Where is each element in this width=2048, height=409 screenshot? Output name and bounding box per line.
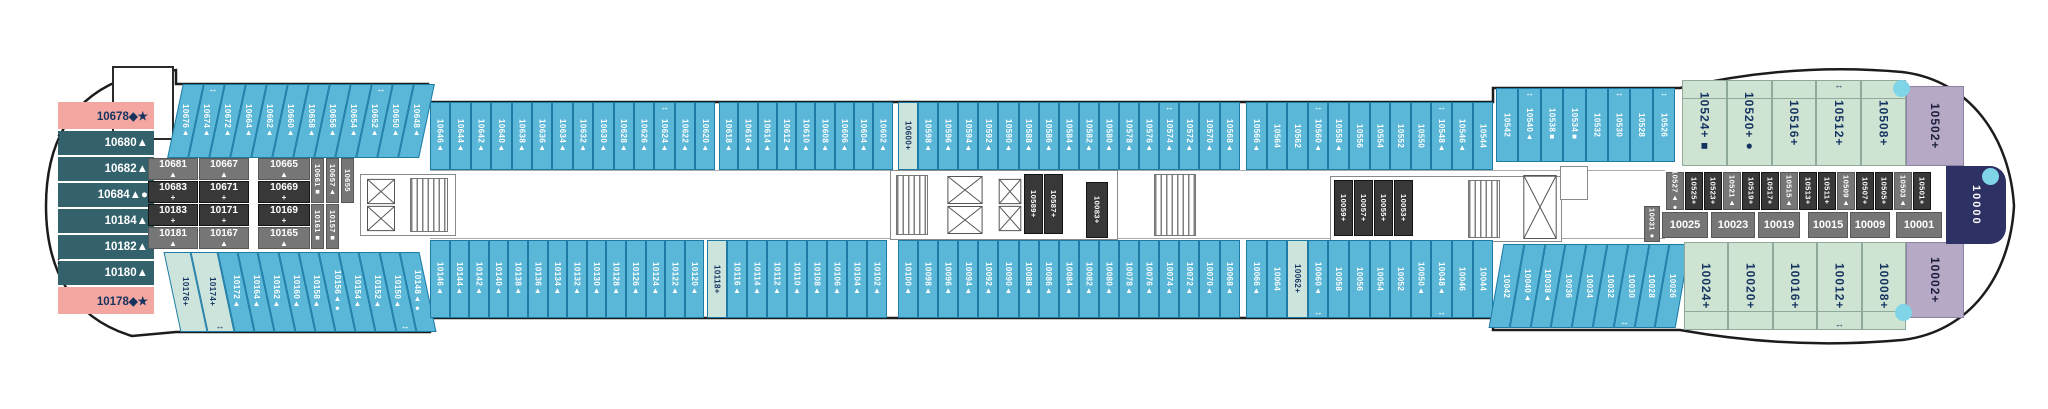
cabin-number: 10676▲ [181, 104, 190, 138]
cabin-10517[interactable]: 10517+ [1761, 172, 1779, 210]
cabin-number: 10046 [1458, 267, 1467, 291]
cabin-10636[interactable]: 10636▲ [532, 102, 552, 170]
cabin-10678[interactable]: 10678◆★ [58, 102, 154, 129]
cabin-10509[interactable]: 10509▲ [1837, 172, 1855, 210]
cabin-number: 10661■ [313, 164, 322, 196]
cabin-10642[interactable]: 10642▲ [471, 102, 491, 170]
cabin-row-segment: 10024+10020+10016+10012+↔10008+ [1684, 242, 1906, 330]
cabin-10526[interactable]: 10526↔ [1653, 88, 1675, 162]
cabin-10512[interactable]: 10512+↔ [1816, 80, 1861, 166]
cabin-number: 10124▲ [651, 262, 660, 296]
cabin-number: 10572▲ [1185, 119, 1194, 153]
cabin-10066[interactable]: 10066▲ [1246, 240, 1267, 318]
cabin-10070[interactable]: 10070▲ [1199, 240, 1219, 318]
cabin-10060[interactable]: 10060▲↔ [1308, 240, 1329, 318]
cabin-10146[interactable]: 10146▲ [430, 240, 450, 318]
cabin-number: 10530 [1615, 113, 1624, 137]
cabin-10068[interactable]: 10068▲ [1220, 240, 1240, 318]
cabin-10507[interactable]: 10507+ [1856, 172, 1874, 210]
cabin-10023[interactable]: 10023 [1711, 212, 1755, 238]
cabin-10031[interactable]: 10031● [1644, 206, 1660, 242]
cabin-number: 10520+● [1742, 92, 1756, 153]
cabin-10503[interactable]: 10503▲ [1894, 172, 1912, 210]
cabin-number: 10525+ [1690, 177, 1699, 205]
cabin-10527[interactable]: 10527▲● [1666, 172, 1684, 210]
cabin-10019[interactable]: 10019 [1758, 212, 1800, 238]
cabin-10086[interactable]: 10086▲ [1039, 240, 1059, 318]
cabin-10130[interactable]: 10130▲ [587, 240, 607, 318]
cabin-number: 10501+ [1918, 177, 1927, 205]
connecting-rooms-icon: ↔ [1309, 308, 1328, 317]
cabin-10568[interactable]: 10568▲ [1220, 102, 1240, 170]
cabin-number: 10167 [210, 229, 238, 239]
cabin-number: 10162▲ [272, 275, 281, 309]
cabin-10044[interactable]: 10044 [1473, 240, 1494, 318]
cabin-10516[interactable]: 10516+ [1772, 80, 1817, 166]
cabin-number: 10136▲ [533, 262, 542, 296]
cabin-number: 10161■ [313, 210, 322, 242]
stairs-icon [896, 175, 928, 235]
suite-divider [1683, 98, 1726, 99]
cabin-symbol: ▲ [220, 239, 228, 248]
cabin-number: 10556 [1355, 124, 1364, 148]
cabin-10012[interactable]: 10012+↔ [1817, 242, 1861, 330]
connecting-rooms-icon: ↔ [1519, 89, 1539, 98]
cabin-number: 10080▲ [1104, 262, 1113, 296]
cabin-10665[interactable]: 10665▲ [258, 158, 310, 180]
cabin-number: 10108▲ [813, 262, 822, 296]
cabin-10523[interactable]: 10523+ [1704, 172, 1722, 210]
cabin-10090[interactable]: 10090▲ [998, 240, 1018, 318]
cabin-number: 10550 [1417, 124, 1426, 148]
cabin-10182[interactable]: 10182▲ [58, 235, 154, 259]
cabin-10661[interactable]: 10661■ [311, 158, 324, 203]
cabin-10062[interactable]: 10062+ [1287, 240, 1308, 318]
cabin-number: 10154▲ [353, 275, 362, 309]
cabin-10076[interactable]: 10076▲ [1139, 240, 1159, 318]
cabin-row-segment: 10172▲10164▲10162▲10160▲10158▲10156▲●101… [217, 252, 436, 332]
cabin-number: 10674▲ [202, 104, 211, 138]
cabin-10667[interactable]: 10667▲ [199, 158, 249, 180]
cabin-number: 10126▲ [631, 262, 640, 296]
cabin-number: 10165 [270, 229, 298, 239]
cabin-10669[interactable]: 10669+ [258, 181, 310, 203]
cabin-10587[interactable]: 10587+ [1044, 174, 1063, 234]
cabin-10001[interactable]: 10001 [1896, 212, 1942, 238]
cabin-10165[interactable]: 10165▲ [258, 227, 310, 249]
cabin-number: 10656▲ [328, 104, 337, 138]
cabin-number: 10516+ [1787, 100, 1801, 146]
cabin-number: 10102▲ [873, 262, 882, 296]
cabin-number: 10024+ [1699, 263, 1713, 309]
cabin-10157[interactable]: 10157■ [326, 204, 339, 249]
cabin-10572[interactable]: 10572▲ [1179, 102, 1199, 170]
cabin-number: 10576▲ [1145, 119, 1154, 153]
cabin-10525[interactable]: 10525+ [1685, 172, 1703, 210]
cabin-10513[interactable]: 10513+ [1799, 172, 1817, 210]
cabin-10118[interactable]: 10118+ [707, 240, 727, 318]
cabin-number: 10132▲ [572, 262, 581, 296]
cabin-10671[interactable]: 10671+ [199, 181, 249, 203]
cabin-10558[interactable]: 10558▲ [1328, 102, 1349, 170]
cabin-10532[interactable]: 10532 [1586, 88, 1608, 162]
cabin-row-segment: 10600+10598▲10596▲10594▲10592▲10590▲1058… [898, 102, 1240, 170]
cabin-10544[interactable]: 10544 [1473, 102, 1494, 170]
cabin-number: 10587+ [1049, 190, 1058, 218]
cabin-number: 10116▲ [733, 262, 742, 295]
cabin-number: 10158▲ [312, 275, 321, 309]
cabin-number: 10628▲ [619, 119, 628, 153]
cabin-10646[interactable]: 10646▲ [430, 102, 450, 170]
cabin-number: 10090▲ [1004, 262, 1013, 296]
cabin-number: 10070▲ [1205, 262, 1214, 296]
cabin-number: 10016+ [1788, 263, 1802, 309]
cabin-10612[interactable]: 10612▲ [777, 102, 796, 170]
cabin-10634[interactable]: 10634▲ [552, 102, 572, 170]
cabin-number: 10578▲ [1125, 119, 1134, 153]
cabin-10580[interactable]: 10580▲ [1099, 102, 1119, 170]
cabin-10582[interactable]: 10582▲ [1079, 102, 1099, 170]
cabin-10048[interactable]: 10048▲↔ [1431, 240, 1452, 318]
cabin-number: 10120▲ [690, 262, 699, 296]
cabin-10600[interactable]: 10600+ [898, 102, 918, 170]
cabin-number: 10584▲ [1064, 119, 1073, 153]
cabin-10588[interactable]: 10588▲ [1019, 102, 1039, 170]
cabin-number: 10515▲ [1785, 175, 1794, 207]
cabin-10590[interactable]: 10590▲ [998, 102, 1018, 170]
cabin-10053[interactable]: 10053+ [1394, 180, 1413, 236]
cabin-10640[interactable]: 10640▲ [491, 102, 511, 170]
cabin-10589[interactable]: 10589+ [1024, 174, 1043, 234]
cabin-number: 10104▲ [853, 262, 862, 296]
cabin-number: 10000 [1970, 185, 1982, 226]
cabin-10684[interactable]: 10684▲● [58, 183, 154, 207]
cabin-10046[interactable]: 10046 [1452, 240, 1473, 318]
cabin-10110[interactable]: 10110▲ [787, 240, 807, 318]
cabin-10628[interactable]: 10628▲ [614, 102, 634, 170]
cabin-10102[interactable]: 10102▲ [867, 240, 887, 318]
cabin-10064[interactable]: 10064 [1267, 240, 1288, 318]
cabin-number: 10110▲ [793, 262, 802, 295]
cabin-number: 10622▲ [680, 119, 689, 153]
connecting-rooms-icon: ↔ [203, 85, 224, 94]
cabin-10083[interactable]: 10083+ [1086, 182, 1108, 238]
cabin-number: 10134▲ [553, 262, 562, 296]
cabin-number: 10118+ [713, 265, 722, 294]
cabin-10144[interactable]: 10144▲ [450, 240, 470, 318]
cabin-10556[interactable]: 10556 [1349, 102, 1370, 170]
cabin-number: 10570▲ [1205, 119, 1214, 153]
cabin-number: 10072▲ [1185, 262, 1194, 296]
cabin-number: 10600+ [904, 121, 913, 150]
cabin-number: 10064 [1272, 267, 1281, 291]
cabin-number: 10596▲ [944, 119, 953, 153]
cabin-10136[interactable]: 10136▲ [528, 240, 548, 318]
cabin-number: 10088▲ [1024, 262, 1033, 296]
cabin-10681[interactable]: 10681▲ [148, 158, 198, 180]
cabin-10126[interactable]: 10126▲ [626, 240, 646, 318]
cabin-number: 10527▲● [1671, 170, 1680, 212]
cabin-10098[interactable]: 10098▲ [918, 240, 938, 318]
cabin-number: 10169 [270, 206, 298, 216]
cabin-number: 10512+ [1832, 100, 1846, 146]
stairs-icon [1468, 180, 1500, 238]
cabin-10592[interactable]: 10592▲ [978, 102, 998, 170]
cabin-10515[interactable]: 10515▲ [1780, 172, 1798, 210]
cabin-10134[interactable]: 10134▲ [548, 240, 568, 318]
cabin-10084[interactable]: 10084▲ [1059, 240, 1079, 318]
cabin-10562[interactable]: 10562 [1287, 102, 1308, 170]
cabin-10644[interactable]: 10644▲ [450, 102, 470, 170]
cabin-number: 10616▲ [743, 119, 752, 153]
cabin-number: 10582▲ [1084, 119, 1093, 153]
cabin-10638[interactable]: 10638▲ [512, 102, 532, 170]
cabin-10072[interactable]: 10072▲ [1179, 240, 1199, 318]
cabin-10161[interactable]: 10161■ [311, 204, 324, 249]
cabin-10054[interactable]: 10054 [1370, 240, 1391, 318]
cabin-10114[interactable]: 10114▲ [747, 240, 767, 318]
cabin-10602[interactable]: 10602▲ [873, 102, 892, 170]
cabin-10108[interactable]: 10108▲ [807, 240, 827, 318]
cabin-10122[interactable]: 10122▲ [665, 240, 685, 318]
cabin-10184[interactable]: 10184▲ [58, 209, 154, 233]
cabin-10570[interactable]: 10570▲ [1199, 102, 1219, 170]
cabin-number: 10511+ [1823, 177, 1832, 204]
cabin-symbol: + [222, 193, 227, 202]
cabin-10616[interactable]: 10616▲ [738, 102, 757, 170]
cabin-10138[interactable]: 10138▲ [508, 240, 528, 318]
cabin-10566[interactable]: 10566▲ [1246, 102, 1267, 170]
cabin-10655[interactable]: 10655 [341, 158, 354, 203]
cabin-10682[interactable]: 10682▲ [58, 157, 154, 181]
cabin-10171[interactable]: 10171+ [199, 204, 249, 226]
cabin-10088[interactable]: 10088▲ [1019, 240, 1039, 318]
cabin-10140[interactable]: 10140▲ [489, 240, 509, 318]
cabin-10528[interactable]: 10528 [1630, 88, 1652, 162]
cabin-10080[interactable]: 10080▲ [1099, 240, 1119, 318]
feature-dot [1895, 304, 1912, 321]
cabin-number: 10660▲ [286, 104, 295, 138]
cabin-number: 10624▲ [660, 119, 669, 153]
cabin-10100[interactable]: 10100▲ [898, 240, 918, 318]
cabin-10181[interactable]: 10181▲ [148, 227, 198, 249]
cabin-number: 10036 [1564, 274, 1573, 298]
cabin-number: 10505+ [1880, 177, 1889, 205]
cabin-10620[interactable]: 10620▲ [695, 102, 715, 170]
cabin-row-segment: 10524+■10520+●10516+10512+↔10508+ [1682, 80, 1906, 166]
suite-divider [1818, 311, 1860, 312]
connecting-rooms-icon: ↔ [655, 103, 673, 112]
cabin-number: 10098▲ [924, 262, 933, 296]
cabin-10020[interactable]: 10020+ [1728, 242, 1772, 330]
cabin-10608[interactable]: 10608▲ [815, 102, 834, 170]
connecting-rooms-icon: ↔ [1309, 103, 1328, 112]
cabin-number: 10059+ [1339, 194, 1348, 222]
cabin-10055[interactable]: 10055+ [1374, 180, 1393, 236]
cabin-number: 10074▲ [1165, 262, 1174, 296]
cabin-number: 10044 [1478, 267, 1487, 291]
cabin-10538[interactable]: 10538■ [1541, 88, 1563, 162]
cabin-number: 10672▲ [223, 104, 232, 138]
feature-dot [1982, 168, 1999, 185]
cabin-10680[interactable]: 10680▲ [58, 131, 154, 155]
cabin-10632[interactable]: 10632▲ [573, 102, 593, 170]
cabin-symbol: + [171, 216, 176, 225]
cabin-number: 10638▲ [517, 119, 526, 153]
cabin-number: 10654▲ [349, 104, 358, 138]
cabin-10112[interactable]: 10112▲ [767, 240, 787, 318]
cabin-10502[interactable]: 10502+ [1906, 86, 1964, 166]
cabin-10124[interactable]: 10124▲ [646, 240, 666, 318]
cabin-10057[interactable]: 10057+ [1354, 180, 1373, 236]
cabin-number: 10122▲ [670, 262, 679, 296]
cabin-10024[interactable]: 10024+ [1684, 242, 1728, 330]
cabin-number: 10632▲ [578, 119, 587, 153]
cabin-10594[interactable]: 10594▲ [958, 102, 978, 170]
cabin-10540[interactable]: 10540▲↔ [1518, 88, 1540, 162]
cabin-number: 10114▲ [753, 262, 762, 295]
cabin-10104[interactable]: 10104▲ [847, 240, 867, 318]
cabin-10618[interactable]: 10618▲ [719, 102, 738, 170]
cabin-number: 10507+ [1861, 177, 1870, 205]
cabin-10564[interactable]: 10564 [1267, 102, 1288, 170]
cabin-10142[interactable]: 10142▲ [469, 240, 489, 318]
cabin-10604[interactable]: 10604▲ [854, 102, 873, 170]
cabin-number: 10038▲ [1543, 269, 1552, 303]
connecting-rooms-icon: ↔ [206, 322, 233, 331]
cabin-10584[interactable]: 10584▲ [1059, 102, 1079, 170]
feature-dot [1893, 80, 1910, 97]
cabin-number: 10524+■ [1697, 92, 1711, 153]
cabin-number: 10156▲● [333, 270, 342, 313]
cabin-10078[interactable]: 10078▲ [1119, 240, 1139, 318]
cabin-10534[interactable]: 10534■ [1563, 88, 1585, 162]
cabin-10578[interactable]: 10578▲ [1119, 102, 1139, 170]
cabin-number: 10012+ [1832, 263, 1846, 309]
cabin-10092[interactable]: 10092▲ [978, 240, 998, 318]
cabin-number: 10540▲ [1525, 108, 1534, 142]
cabin-10530[interactable]: 10530↔ [1608, 88, 1630, 162]
cabin-10002[interactable]: 10002+ [1906, 242, 1964, 318]
cabin-10025[interactable]: 10025 [1662, 212, 1708, 238]
connecting-rooms-icon: ↔ [1654, 89, 1674, 98]
cabin-10520[interactable]: 10520+● [1727, 80, 1772, 166]
cabin-number: 10588▲ [1024, 119, 1033, 153]
cabin-10624[interactable]: 10624▲↔ [654, 102, 674, 170]
cabin-10657[interactable]: 10657▲ [326, 158, 339, 203]
cabin-10169[interactable]: 10169+ [258, 204, 310, 226]
cabin-10546[interactable]: 10546▲ [1452, 102, 1473, 170]
cabin-number: 10657▲ [328, 164, 337, 196]
cabin-10132[interactable]: 10132▲ [567, 240, 587, 318]
cabin-10106[interactable]: 10106▲ [827, 240, 847, 318]
cabin-10554[interactable]: 10554 [1370, 102, 1391, 170]
cabin-10094[interactable]: 10094▲ [958, 240, 978, 318]
cabin-number: 10160▲ [292, 275, 301, 309]
cabin-number: 10618▲ [724, 119, 733, 153]
cabin-10050[interactable]: 10050▲ [1411, 240, 1432, 318]
suite-divider [1817, 98, 1860, 99]
cabin-10082[interactable]: 10082▲ [1079, 240, 1099, 318]
cabin-10120[interactable]: 10120▲ [685, 240, 705, 318]
cabin-10052[interactable]: 10052 [1390, 240, 1411, 318]
cabin-10056[interactable]: 10056 [1349, 240, 1370, 318]
cabin-10574[interactable]: 10574▲↔ [1159, 102, 1179, 170]
cabin-10167[interactable]: 10167▲ [199, 227, 249, 249]
cabin-number: 10554 [1375, 124, 1384, 148]
cabin-10511[interactable]: 10511+ [1818, 172, 1836, 210]
cabin-number: 10602▲ [879, 119, 888, 153]
cabin-10630[interactable]: 10630▲ [593, 102, 613, 170]
cabin-number: 10532 [1592, 113, 1601, 137]
cabin-number: 10058 [1334, 267, 1343, 291]
cabin-10015[interactable]: 10015 [1808, 212, 1848, 238]
cabin-10626[interactable]: 10626▲ [634, 102, 654, 170]
cabin-10178[interactable]: 10178◆★ [58, 287, 154, 314]
cabin-10058[interactable]: 10058 [1328, 240, 1349, 318]
cabin-10521[interactable]: 10521▲ [1723, 172, 1741, 210]
cabin-number: 10078▲ [1125, 262, 1134, 296]
cabin-row-segment: 10146▲10144▲10142▲10140▲10138▲10136▲1013… [430, 240, 704, 318]
cabin-number: 10606▲ [840, 119, 849, 153]
cabin-number: 10502+ [1928, 103, 1942, 149]
cabin-10622[interactable]: 10622▲ [675, 102, 695, 170]
cabin-number: 10560▲ [1314, 119, 1323, 153]
cabin-10501[interactable]: 10501+ [1913, 172, 1931, 210]
cabin-10128[interactable]: 10128▲ [606, 240, 626, 318]
cabin-10524[interactable]: 10524+■ [1682, 80, 1727, 166]
cabin-10116[interactable]: 10116▲ [727, 240, 747, 318]
cabin-10560[interactable]: 10560▲↔ [1308, 102, 1329, 170]
cabin-10550[interactable]: 10550 [1411, 102, 1432, 170]
cabin-row-segment: 10002+ [1906, 242, 1964, 318]
cabin-number: 10562 [1293, 124, 1302, 148]
cabin-number: 10128▲ [612, 262, 621, 296]
cabin-10586[interactable]: 10586▲ [1039, 102, 1059, 170]
cabin-10683[interactable]: 10683+ [148, 181, 198, 203]
cabin-number: 10020+ [1744, 263, 1758, 309]
cabin-symbol: ▲ [280, 170, 288, 179]
cabin-10074[interactable]: 10074▲ [1159, 240, 1179, 318]
cabin-number: 10181 [159, 229, 187, 239]
cabin-number: 10094▲ [964, 262, 973, 296]
cabin-10614[interactable]: 10614▲ [758, 102, 777, 170]
cabin-10576[interactable]: 10576▲ [1139, 102, 1159, 170]
cabin-number: 10604▲ [859, 119, 868, 153]
cabin-10016[interactable]: 10016+ [1773, 242, 1817, 330]
cabin-10610[interactable]: 10610▲ [796, 102, 815, 170]
cabin-10059[interactable]: 10059+ [1334, 180, 1353, 236]
cabin-10606[interactable]: 10606▲ [835, 102, 854, 170]
cabin-10598[interactable]: 10598▲ [918, 102, 938, 170]
cabin-10505[interactable]: 10505+ [1875, 172, 1893, 210]
cabin-10548[interactable]: 10548▲↔ [1431, 102, 1452, 170]
cabin-number: 10171 [210, 206, 238, 216]
cabin-10096[interactable]: 10096▲ [938, 240, 958, 318]
deck-plan: 10678◆★10680▲10682▲10684▲●10184▲10182▲10… [0, 0, 2048, 409]
cabin-10552[interactable]: 10552 [1390, 102, 1411, 170]
cabin-10596[interactable]: 10596▲ [938, 102, 958, 170]
cabin-10180[interactable]: 10180▲ [58, 261, 154, 285]
cabin-number: 10148▲● [413, 270, 422, 313]
cabin-10542[interactable]: 10542 [1496, 88, 1518, 162]
cabin-10009[interactable]: 10009 [1850, 212, 1890, 238]
cabin-number: 10140▲ [494, 262, 503, 296]
cabin-10519[interactable]: 10519+ [1742, 172, 1760, 210]
cabin-number: 10658▲ [307, 104, 316, 138]
cabin-number: 10002+ [1928, 257, 1942, 303]
cabin-10183[interactable]: 10183+ [148, 204, 198, 226]
